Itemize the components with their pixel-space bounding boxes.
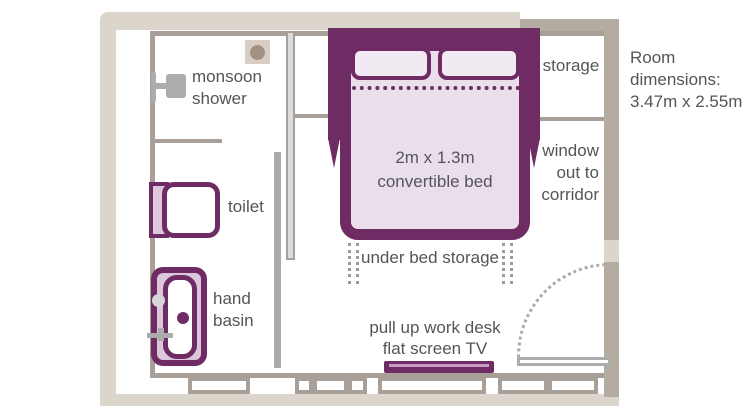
door-opening xyxy=(604,240,619,262)
bed-wrap-left-tip xyxy=(328,138,340,168)
bathroom-partition-wall xyxy=(286,31,295,260)
hand-basin-label: hand basin xyxy=(213,288,254,332)
window-label-line1: window xyxy=(490,140,599,162)
shower-label-line2: shower xyxy=(192,88,262,110)
shower-body-icon xyxy=(166,74,186,98)
basin-label-line2: basin xyxy=(213,310,254,332)
basin-drain-icon xyxy=(177,312,189,324)
monsoon-shower-label: monsoon shower xyxy=(192,66,262,110)
bed-fold-line xyxy=(352,86,520,90)
wall-panel xyxy=(498,377,548,394)
door-leaf xyxy=(517,357,611,366)
floor-plan: monsoon shower toilet hand basin 2m x 1.… xyxy=(0,0,750,411)
storage-divider xyxy=(540,117,604,121)
basin-label-line1: hand xyxy=(213,288,254,310)
sliding-door-panel xyxy=(274,152,281,368)
wall-panel xyxy=(313,377,348,394)
toilet-label: toilet xyxy=(228,196,264,218)
tap-handle-icon xyxy=(147,333,173,338)
under-bed-storage-label: under bed storage xyxy=(330,247,530,269)
shower-divider xyxy=(152,139,222,143)
pillow-right xyxy=(438,47,520,80)
bed-side-divider xyxy=(295,114,330,118)
toilet-bowl xyxy=(162,182,220,238)
wall-panel xyxy=(188,377,250,394)
frame-bottom-band xyxy=(100,394,619,406)
wall-panel xyxy=(548,377,598,394)
basin-plug-icon xyxy=(152,294,165,307)
door-arc-circle xyxy=(517,263,611,357)
dims-line3: 3.47m x 2.55m xyxy=(630,91,742,113)
pillow-left xyxy=(351,47,431,80)
wall-panel xyxy=(295,377,313,394)
window-label: window out to corridor xyxy=(490,140,599,206)
window-label-line3: corridor xyxy=(490,184,599,206)
room-dimensions-label: Room dimensions: 3.47m x 2.55m xyxy=(630,47,742,113)
wall-panel xyxy=(348,377,367,394)
desk-label-line2: flat screen TV xyxy=(325,338,545,359)
desk-tv-label: pull up work desk flat screen TV xyxy=(325,317,545,359)
door-swing-arc xyxy=(517,263,611,357)
dims-line2: dimensions: xyxy=(630,69,742,91)
wall-panel xyxy=(378,377,486,394)
tv-desk-unit xyxy=(384,361,494,373)
shower-label-line1: monsoon xyxy=(192,66,262,88)
storage-label: storage xyxy=(538,55,604,77)
window-label-line2: out to xyxy=(490,162,599,184)
tv-desk-stripe xyxy=(389,364,489,367)
frame-left-band xyxy=(100,12,116,404)
dims-line1: Room xyxy=(630,47,742,69)
desk-label-line1: pull up work desk xyxy=(325,317,545,338)
fan-circle-icon xyxy=(250,45,265,60)
